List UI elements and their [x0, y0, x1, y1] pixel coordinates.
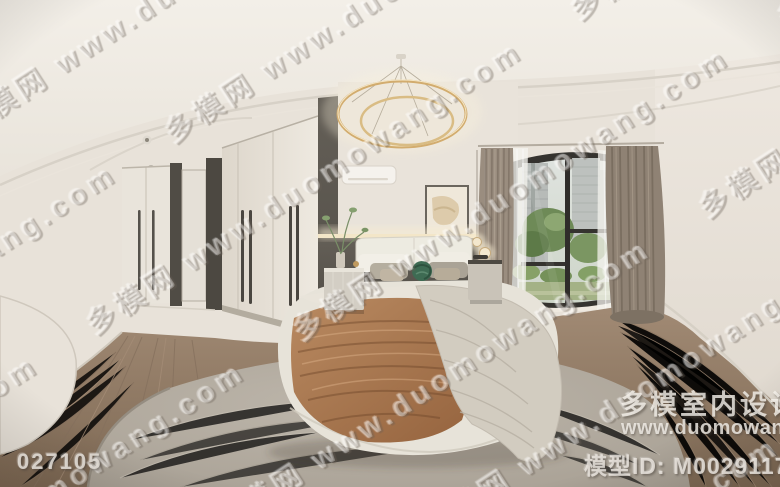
photo-id-label: 027105 [17, 449, 102, 475]
brand-url-label: www.duomowang.com [621, 417, 780, 440]
model-id-label: 模型ID: M0029117 [584, 447, 780, 481]
panorama-bedroom-photo: 多模网 www.duomowang.com多模网 www.duomowang.c… [0, 0, 780, 487]
